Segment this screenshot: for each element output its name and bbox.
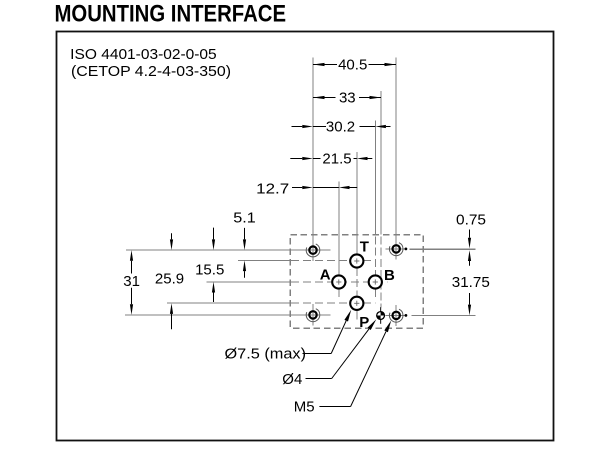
svg-text:31: 31 [123, 273, 140, 290]
svg-text:(CETOP 4.2-4-03-350): (CETOP 4.2-4-03-350) [71, 63, 231, 80]
svg-text:40.5: 40.5 [338, 57, 367, 74]
svg-text:ISO 4401-03-02-0-05: ISO 4401-03-02-0-05 [70, 46, 217, 63]
svg-text:M5: M5 [294, 398, 315, 415]
svg-text:25.9: 25.9 [155, 270, 184, 287]
svg-text:T: T [360, 238, 369, 255]
svg-text:5.1: 5.1 [233, 210, 256, 227]
svg-text:33: 33 [339, 89, 356, 106]
svg-text:31.75: 31.75 [452, 274, 490, 291]
svg-text:21.5: 21.5 [322, 151, 351, 168]
svg-text:12.7: 12.7 [256, 180, 289, 197]
svg-text:Ø7.5 (max): Ø7.5 (max) [225, 345, 307, 362]
svg-text:B: B [384, 267, 395, 284]
svg-text:P: P [359, 314, 369, 331]
svg-text:A: A [320, 267, 331, 284]
svg-text:15.5: 15.5 [195, 261, 224, 278]
svg-text:Ø4: Ø4 [282, 371, 302, 388]
svg-text:0.75: 0.75 [456, 212, 486, 229]
svg-text:MOUNTING INTERFACE: MOUNTING INTERFACE [55, 1, 287, 28]
svg-text:30.2: 30.2 [326, 119, 355, 136]
